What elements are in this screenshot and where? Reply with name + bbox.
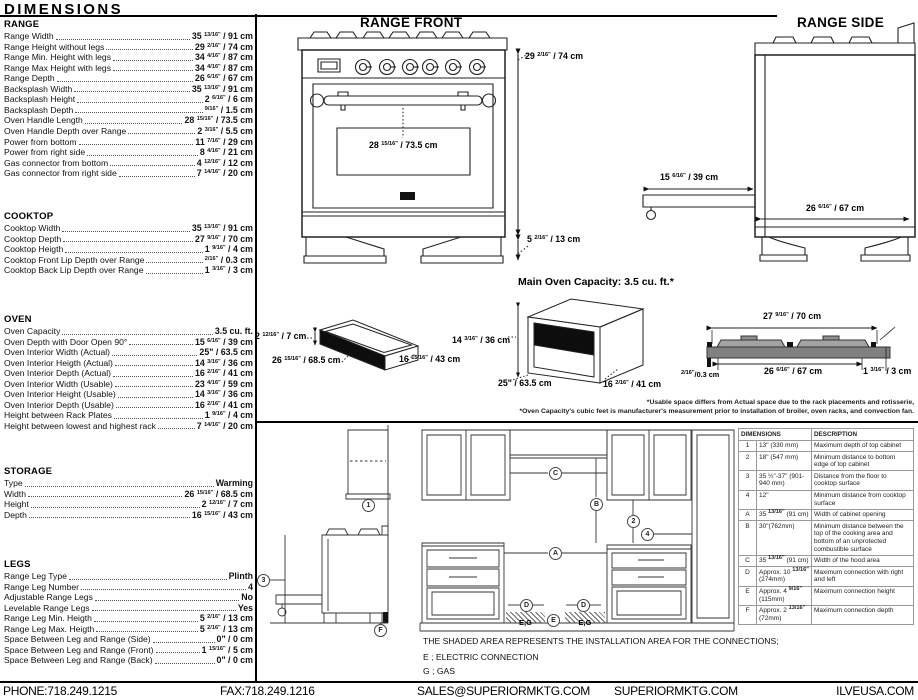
spec-value: 34 4/16" / 87 cm bbox=[195, 63, 253, 73]
spec-value: 29 2/16" / 74 cm bbox=[195, 42, 253, 52]
spec-row: Range Height without legs29 2/16" / 74 c… bbox=[4, 41, 253, 52]
table-description: Maximum depth of top cabinet bbox=[812, 440, 914, 452]
spec-value: 16 2/16" / 41 cm bbox=[195, 368, 253, 378]
table-row: FApprox. 2 13/16" (72mm)Maximum connecti… bbox=[739, 605, 914, 624]
dotted-leader bbox=[129, 344, 193, 345]
dotted-leader bbox=[128, 133, 195, 134]
ref-marker-e: E bbox=[547, 614, 560, 627]
spec-value: 34 4/16" / 87 cm bbox=[195, 52, 253, 62]
table-row: 335 ½"-37" (901-940 mm)Distance from the… bbox=[739, 471, 914, 490]
spec-label: Space Between Leg and Range (Side) bbox=[4, 634, 151, 644]
spec-label: Oven Interior Width (Actual) bbox=[4, 347, 110, 357]
dotted-leader bbox=[146, 262, 202, 263]
table-ref: 3 bbox=[739, 471, 757, 490]
spec-row: Range Leg Max. Heigth5 2/16" / 13 cm bbox=[4, 623, 253, 634]
spec-value: 14 3/16" / 36 cm bbox=[195, 358, 253, 368]
spec-label: Oven Handle Length bbox=[4, 115, 83, 125]
front-handle-label: 28 15/16" / 73.5 cm bbox=[369, 140, 438, 150]
spec-label: Range Height without legs bbox=[4, 42, 104, 52]
spec-row: Oven Interior Heigth (Actual)14 3/16" / … bbox=[4, 357, 253, 368]
spec-label: Cooktop Width bbox=[4, 223, 60, 233]
spec-value: 1 9/16" / 4 cm bbox=[205, 410, 253, 420]
spec-label: Adjustable Range Legs bbox=[4, 592, 93, 602]
legend-electric: E ; ELECTRIC CONNECTION bbox=[423, 652, 539, 662]
spec-row: Range Width35 13/16" / 91 cm bbox=[4, 31, 253, 42]
table-description: Minimum distance between the top of the … bbox=[812, 521, 914, 555]
ref-marker-3: 3 bbox=[257, 574, 270, 587]
drawer-height-label: 2 12/16" / 7 cm bbox=[255, 331, 306, 341]
footnote-line: *Usable space differs from Actual space … bbox=[519, 399, 914, 408]
legend-gas: G ; GAS bbox=[423, 666, 455, 676]
dotted-leader bbox=[94, 621, 198, 622]
spec-value: 26 6/16" / 67 cm bbox=[195, 73, 253, 83]
table-dimension: 30"(762mm) bbox=[757, 521, 812, 555]
footer-email: SALES@SUPERIORMKTG.COM bbox=[417, 684, 590, 698]
spec-section-title: COOKTOP bbox=[4, 211, 253, 223]
table-dimension: 13" (330 mm) bbox=[757, 440, 812, 452]
soffit-band bbox=[510, 430, 607, 458]
dotted-leader bbox=[85, 123, 183, 124]
dotted-leader bbox=[28, 496, 183, 497]
spec-label: Range Width bbox=[4, 31, 54, 41]
spec-row: Levelable Range LegsYes bbox=[4, 602, 253, 613]
spec-value: 16 15/16" / 43 cm bbox=[192, 510, 253, 520]
dotted-leader bbox=[65, 252, 202, 253]
dotted-leader bbox=[119, 176, 195, 177]
ref-marker-a: A bbox=[549, 547, 562, 560]
dotted-leader bbox=[146, 273, 203, 274]
spec-row: Adjustable Range LegsNo bbox=[4, 592, 253, 603]
spec-row: Cooktop Front Lip Depth over Range2/16" … bbox=[4, 254, 253, 265]
table-dimension: Approx. 10 13/16" (274mm) bbox=[757, 567, 812, 586]
spec-row: Range Leg Min. Heigth5 2/16" / 13 cm bbox=[4, 613, 253, 624]
table-row: DApprox. 10 13/16" (274mm)Maximum connec… bbox=[739, 567, 914, 586]
table-dimension: 35 13/16" (91 cm) bbox=[757, 555, 812, 567]
dotted-leader bbox=[95, 600, 239, 601]
spec-label: Levelable Range Legs bbox=[4, 603, 90, 613]
table-description: Maximum connection depth bbox=[812, 605, 914, 624]
spec-row: Backsplash Depth9/16" / 1.5 cm bbox=[4, 104, 253, 115]
cooktop-top-width-label: 27 9/16" / 70 cm bbox=[763, 311, 821, 321]
spec-row: Oven Interior Depth (Usable)16 2/16" / 4… bbox=[4, 399, 253, 410]
spec-section-legs: LEGSRange Leg TypePlinthRange Leg Number… bbox=[4, 559, 253, 665]
spec-section-title: LEGS bbox=[4, 559, 253, 571]
oven-handle bbox=[311, 92, 496, 110]
cooktop-inner-width-label: 26 6/16" / 67 cm bbox=[764, 366, 822, 376]
spec-value: 7 14/16" / 20 cm bbox=[197, 168, 253, 178]
table-dimension: 18" (547 mm) bbox=[757, 452, 812, 471]
dotted-leader bbox=[114, 418, 203, 419]
spec-row: Cooktop Heigth1 9/16" / 4 cm bbox=[4, 244, 253, 255]
spec-section-storage: STORAGETypeWarmingWidth26 15/16" / 68.5 … bbox=[4, 466, 253, 520]
spec-row: Range Depth26 6/16" / 67 cm bbox=[4, 73, 253, 84]
oven-box-width-label: 25" / 63.5 cm bbox=[498, 378, 552, 388]
spec-label: Depth bbox=[4, 510, 27, 520]
burner-profile bbox=[773, 37, 872, 43]
dotted-leader bbox=[81, 589, 246, 590]
spec-row: Height2 12/16" / 7 cm bbox=[4, 499, 253, 510]
table-row: 412"Minimum distance from cooktop surfac… bbox=[739, 490, 914, 509]
footer-phone: PHONE:718.249.1215 bbox=[3, 684, 117, 698]
dotted-leader bbox=[158, 428, 195, 429]
table-description: Minimum distance to bottom edge of top c… bbox=[812, 452, 914, 471]
spec-value: 35 13/16" / 91 cm bbox=[192, 31, 253, 41]
installation-note: THE SHADED AREA REPRESENTS THE INSTALLAT… bbox=[423, 636, 779, 646]
spec-section-oven: OVENOven Capacity3.5 cu. ft.Oven Depth w… bbox=[4, 314, 253, 431]
base-cabinet-right bbox=[607, 545, 691, 623]
table-row: 113" (330 mm)Maximum depth of top cabine… bbox=[739, 440, 914, 452]
table-row: EApprox. 4 9/16" (115mm)Maximum connecti… bbox=[739, 586, 914, 605]
dotted-leader bbox=[112, 355, 197, 356]
spec-row: TypeWarming bbox=[4, 478, 253, 489]
spec-label: Range Leg Max. Heigth bbox=[4, 624, 94, 634]
installation-side-diagram bbox=[258, 425, 433, 680]
spec-row: Cooktop Back Lip Depth over Range1 3/16"… bbox=[4, 265, 253, 276]
spec-row: Oven Interior Width (Actual)25" / 63.5 c… bbox=[4, 347, 253, 358]
spec-label: Range Min. Height with legs bbox=[4, 52, 111, 62]
spec-value: 27 9/16" / 70 cm bbox=[195, 234, 253, 244]
spec-label: Power from bottom bbox=[4, 137, 77, 147]
spec-row: Gas connector from right side7 14/16" / … bbox=[4, 168, 253, 179]
spec-value: 4 12/16" / 12 cm bbox=[197, 158, 253, 168]
spec-value: 25" / 63.5 cm bbox=[199, 347, 253, 357]
spec-label: Oven Handle Depth over Range bbox=[4, 126, 126, 136]
spec-row: Space Between Leg and Range (Front)1 15/… bbox=[4, 644, 253, 655]
spec-row: Range Min. Height with legs34 4/16" / 87… bbox=[4, 52, 253, 63]
burner-grates bbox=[310, 32, 490, 38]
table-ref: 2 bbox=[739, 452, 757, 471]
table-ref: 4 bbox=[739, 490, 757, 509]
spec-label: Oven Depth with Door Open 90° bbox=[4, 337, 127, 347]
table-description: Maximum connection with right and left bbox=[812, 567, 914, 586]
dotted-leader bbox=[56, 39, 190, 40]
spec-value: 2 12/16" / 7 cm bbox=[202, 499, 253, 509]
side-door-open-label: 15 6/16" / 39 cm bbox=[660, 172, 718, 182]
height-dimension-arrow bbox=[518, 54, 528, 235]
spec-label: Oven Interior Depth (Actual) bbox=[4, 368, 111, 378]
spec-section-cooktop: COOKTOPCooktop Width35 13/16" / 91 cmCoo… bbox=[4, 211, 253, 275]
spec-row: Cooktop Depth27 9/16" / 70 cm bbox=[4, 233, 253, 244]
spec-value: 28 15/16" / 73.5 cm bbox=[184, 115, 253, 125]
dotted-leader bbox=[31, 507, 200, 508]
dotted-leader bbox=[113, 60, 193, 61]
table-row: C35 13/16" (91 cm)Width of the hood area bbox=[739, 555, 914, 567]
dotted-leader bbox=[115, 365, 193, 366]
spec-value: Plinth bbox=[229, 571, 253, 581]
floor-band bbox=[420, 623, 734, 631]
spec-label: Space Between Leg and Range (Front) bbox=[4, 645, 154, 655]
spec-row: Oven Interior Height (Usable)14 3/16" / … bbox=[4, 389, 253, 400]
footer-divider bbox=[0, 681, 918, 683]
dotted-leader bbox=[106, 49, 193, 50]
spec-value: 35 13/16" / 91 cm bbox=[192, 84, 253, 94]
dotted-leader bbox=[115, 386, 193, 387]
range-side-diagram bbox=[635, 18, 918, 273]
spec-value: 7 14/16" / 20 cm bbox=[197, 421, 253, 431]
front-lip-mark bbox=[707, 358, 711, 367]
table-description: Distance from the floor to cooktop surfa… bbox=[812, 471, 914, 490]
spec-label: Range Depth bbox=[4, 73, 55, 83]
table-description: Minimum distance from cooktop surface bbox=[812, 490, 914, 509]
spec-value: 15 6/16" / 39 cm bbox=[195, 337, 253, 347]
spec-value: 4 bbox=[248, 582, 253, 592]
spec-label: Power from right side bbox=[4, 147, 85, 157]
range-side bbox=[322, 535, 388, 613]
table-row: 218" (547 mm)Minimum distance to bottom … bbox=[739, 452, 914, 471]
plinth-legs bbox=[304, 237, 503, 263]
dotted-leader bbox=[74, 91, 190, 92]
spec-row: Range Leg TypePlinth bbox=[4, 571, 253, 582]
spec-value: 3.5 cu. ft. bbox=[215, 326, 253, 336]
spec-row: Space Between Leg and Range (Back)0" / 0… bbox=[4, 655, 253, 666]
dotted-leader bbox=[113, 70, 193, 71]
table-description: Maximum connection height bbox=[812, 586, 914, 605]
ref-marker-c: C bbox=[549, 467, 562, 480]
ref-marker-4: 4 bbox=[641, 528, 654, 541]
spec-label: Backsplash Depth bbox=[4, 105, 73, 115]
dotted-leader bbox=[96, 631, 198, 632]
table-description: Width of cabinet opening bbox=[812, 509, 914, 521]
dotted-leader bbox=[87, 155, 198, 156]
spec-label: Gas connector from bottom bbox=[4, 158, 108, 168]
backsplash-profile bbox=[898, 23, 914, 43]
base-cabinet-left bbox=[422, 543, 504, 623]
spec-row: Backsplash Height2 6/16" / 6 cm bbox=[4, 94, 253, 105]
spec-label: Oven Interior Depth (Usable) bbox=[4, 400, 114, 410]
ref-marker-2: 2 bbox=[627, 515, 640, 528]
spec-row: Cooktop Width35 13/16" / 91 cm bbox=[4, 223, 253, 234]
spec-value: 2 6/16" / 6 cm bbox=[205, 94, 253, 104]
dotted-leader bbox=[116, 407, 193, 408]
spec-section-title: STORAGE bbox=[4, 466, 253, 478]
spec-label: Type bbox=[4, 478, 23, 488]
oven-box-height-label: 14 3/16" / 36 cm bbox=[452, 335, 510, 345]
door-display bbox=[400, 192, 415, 200]
oven-box-depth-label: 16 2/16" / 41 cm bbox=[603, 379, 661, 389]
dotted-leader bbox=[75, 112, 202, 113]
spec-label: Oven Interior Height (Usable) bbox=[4, 389, 116, 399]
table-ref: D bbox=[739, 567, 757, 586]
spec-row: Backsplash Width35 13/16" / 91 cm bbox=[4, 83, 253, 94]
table-dimension: Approx. 4 9/16" (115mm) bbox=[757, 586, 812, 605]
connection-area-shaded: E,G bbox=[506, 612, 545, 623]
dotted-leader bbox=[155, 663, 215, 664]
table-ref: F bbox=[739, 605, 757, 624]
spec-row: Gas connector from bottom4 12/16" / 12 c… bbox=[4, 157, 253, 168]
spec-row: Range Max Height with legs34 4/16" / 87 … bbox=[4, 62, 253, 73]
spec-label: Oven Capacity bbox=[4, 326, 60, 336]
spec-value: 2 3/16" / 5.5 cm bbox=[197, 126, 253, 136]
ref-marker-d: D bbox=[520, 599, 533, 612]
spec-label: Height bbox=[4, 499, 29, 509]
table-ref: A bbox=[739, 509, 757, 521]
spec-label: Height between lowest and highest rack bbox=[4, 421, 156, 431]
spec-value: 35 13/16" / 91 cm bbox=[192, 223, 253, 233]
upper-cabinet-left bbox=[422, 430, 510, 500]
table-dimension: 35 ½"-37" (901-940 mm) bbox=[757, 471, 812, 490]
spec-value: 9/16" / 1.5 cm bbox=[205, 105, 253, 115]
middle-divider bbox=[255, 421, 918, 423]
dotted-leader bbox=[63, 241, 193, 242]
dotted-leader bbox=[110, 165, 195, 166]
spec-value: 26 15/16" / 68.5 cm bbox=[184, 489, 253, 499]
dotted-leader bbox=[113, 376, 193, 377]
front-height-label: 29 2/16" / 74 cm bbox=[525, 51, 583, 61]
table-header-description: DESCRIPTION bbox=[812, 429, 914, 441]
ref-marker-b: B bbox=[590, 498, 603, 511]
footer-brand-site: ILVEUSA.COM bbox=[836, 684, 914, 698]
oven-capacity-note: Main Oven Capacity: 3.5 cu. ft.* bbox=[518, 276, 674, 288]
table-row: B30"(762mm)Minimum distance between the … bbox=[739, 521, 914, 555]
spec-row: Height between Rack Plates1 9/16" / 4 cm bbox=[4, 410, 253, 421]
hood bbox=[348, 430, 388, 494]
side-depth-label: 26 6/16" / 67 cm bbox=[806, 203, 864, 213]
spec-value: 16 2/16" / 41 cm bbox=[195, 400, 253, 410]
dotted-leader bbox=[79, 144, 194, 145]
spec-section-range: RANGERange Width35 13/16" / 91 cmRange H… bbox=[4, 19, 253, 178]
connection-area-label: E,G bbox=[579, 618, 592, 627]
spec-label: Cooktop Front Lip Depth over Range bbox=[4, 255, 144, 265]
upper-cabinet-right bbox=[607, 430, 691, 500]
spec-value: 11 7/16" / 29 cm bbox=[195, 137, 253, 147]
footnote-line: *Oven Capacity's cubic feet is manufactu… bbox=[519, 408, 914, 417]
connection-area-shaded: E,G bbox=[565, 612, 605, 623]
spec-label: Space Between Leg and Range (Back) bbox=[4, 655, 153, 665]
connection-area-label: E,G bbox=[519, 618, 532, 627]
spec-label: Range Max Height with legs bbox=[4, 63, 111, 73]
spec-value: 14 3/16" / 36 cm bbox=[195, 389, 253, 399]
footer-website: SUPERIORMKTG.COM bbox=[614, 684, 738, 698]
spec-row: Power from bottom11 7/16" / 29 cm bbox=[4, 136, 253, 147]
drawer-width-label: 26 15/16" / 68.5 cm bbox=[272, 355, 341, 365]
footer-fax: FAX:718.249.1216 bbox=[220, 684, 315, 698]
footnotes: *Usable space differs from Actual space … bbox=[519, 399, 914, 416]
spec-value: 1 15/16" / 5 cm bbox=[202, 645, 253, 655]
table-description: Width of the hood area bbox=[812, 555, 914, 567]
spec-label: Oven Interior Width (Usable) bbox=[4, 379, 113, 389]
dotted-leader bbox=[25, 486, 214, 487]
spec-value: 0" / 0 cm bbox=[217, 655, 253, 665]
spec-value: 0" / 0 cm bbox=[217, 634, 253, 644]
spec-value: 5 2/16" / 13 cm bbox=[200, 624, 253, 634]
spec-row: Height between lowest and highest rack7 … bbox=[4, 420, 253, 431]
dimensions-table: DIMENSIONSDESCRIPTION113" (330 mm)Maximu… bbox=[738, 428, 914, 625]
dotted-leader bbox=[92, 610, 236, 611]
spec-value: 8 4/16" / 21 cm bbox=[200, 147, 253, 157]
spec-row: Oven Handle Depth over Range2 3/16" / 5.… bbox=[4, 125, 253, 136]
dotted-leader bbox=[77, 102, 203, 103]
dotted-leader bbox=[118, 397, 193, 398]
spec-row: Oven Interior Width (Usable)23 4/16" / 5… bbox=[4, 378, 253, 389]
spec-row: Width26 15/16" / 68.5 cm bbox=[4, 488, 253, 499]
spec-value: Yes bbox=[238, 603, 253, 613]
spec-value: 1 3/16" / 3 cm bbox=[205, 265, 253, 275]
spec-label: Width bbox=[4, 489, 26, 499]
spec-label: Range Leg Number bbox=[4, 582, 79, 592]
spec-label: Range Leg Type bbox=[4, 571, 67, 581]
tall-cabinet bbox=[692, 430, 734, 623]
open-door bbox=[276, 595, 322, 604]
spec-value: 5 2/16" / 13 cm bbox=[200, 613, 253, 623]
dotted-leader bbox=[62, 334, 212, 335]
cooktop-front-lip-label: 2/16"/0.3 cm bbox=[681, 370, 719, 379]
table-dimension: 35 13/16" (91 cm) bbox=[757, 509, 812, 521]
spec-value: Warming bbox=[216, 478, 253, 488]
spec-row: Power from right side8 4/16" / 21 cm bbox=[4, 147, 253, 158]
dotted-leader bbox=[69, 579, 227, 580]
spec-row: Oven Interior Depth (Actual)16 2/16" / 4… bbox=[4, 368, 253, 379]
spec-section-title: RANGE bbox=[4, 19, 253, 31]
dotted-leader bbox=[57, 81, 193, 82]
table-header-dimensions: DIMENSIONS bbox=[739, 429, 812, 441]
spec-label: Height between Rack Plates bbox=[4, 410, 112, 420]
spec-row: Oven Capacity3.5 cu. ft. bbox=[4, 326, 253, 337]
ref-marker-d: D bbox=[577, 599, 590, 612]
spec-value: 23 4/16" / 59 cm bbox=[195, 379, 253, 389]
front-leg-label: 5 2/16" / 13 cm bbox=[527, 234, 580, 244]
table-ref: C bbox=[739, 555, 757, 567]
table-ref: 1 bbox=[739, 440, 757, 452]
spec-value: 1 9/16" / 4 cm bbox=[205, 244, 253, 254]
control-knobs bbox=[356, 60, 487, 75]
table-ref: B bbox=[739, 521, 757, 555]
ref-marker-1: 1 bbox=[362, 499, 375, 512]
spec-row: Depth16 15/16" / 43 cm bbox=[4, 509, 253, 520]
control-display bbox=[318, 59, 340, 72]
plinth-legs bbox=[760, 237, 910, 261]
spec-value: No bbox=[241, 592, 253, 602]
spec-label: Range Leg Min. Heigth bbox=[4, 613, 92, 623]
table-row: A35 13/16" (91 cm)Width of cabinet openi… bbox=[739, 509, 914, 521]
ref-marker-f: F bbox=[374, 624, 387, 637]
table-dimension: 12" bbox=[757, 490, 812, 509]
spec-label: Cooktop Back Lip Depth over Range bbox=[4, 265, 144, 275]
spec-label: Oven Interior Heigth (Actual) bbox=[4, 358, 113, 368]
spec-label: Backsplash Width bbox=[4, 84, 72, 94]
spec-label: Backsplash Height bbox=[4, 94, 75, 104]
open-door bbox=[643, 195, 755, 220]
spec-value: 2/16" / 0.3 cm bbox=[205, 255, 253, 265]
spec-label: Cooktop Depth bbox=[4, 234, 61, 244]
table-ref: E bbox=[739, 586, 757, 605]
cooktop-back-lip-label: 1 3/16" / 3 cm bbox=[863, 366, 911, 376]
dotted-leader bbox=[153, 642, 215, 643]
spec-row: Space Between Leg and Range (Side)0" / 0… bbox=[4, 634, 253, 645]
spec-row: Range Leg Number4 bbox=[4, 581, 253, 592]
spec-row: Oven Handle Length28 15/16" / 73.5 cm bbox=[4, 115, 253, 126]
dotted-leader bbox=[29, 517, 190, 518]
spec-label: Gas connector from right side bbox=[4, 168, 117, 178]
dotted-leader bbox=[62, 231, 189, 232]
table-dimension: Approx. 2 13/16" (72mm) bbox=[757, 605, 812, 624]
spec-label: Cooktop Heigth bbox=[4, 244, 63, 254]
spec-section-title: OVEN bbox=[4, 314, 253, 326]
spec-row: Oven Depth with Door Open 90°15 6/16" / … bbox=[4, 336, 253, 347]
dotted-leader bbox=[156, 652, 200, 653]
